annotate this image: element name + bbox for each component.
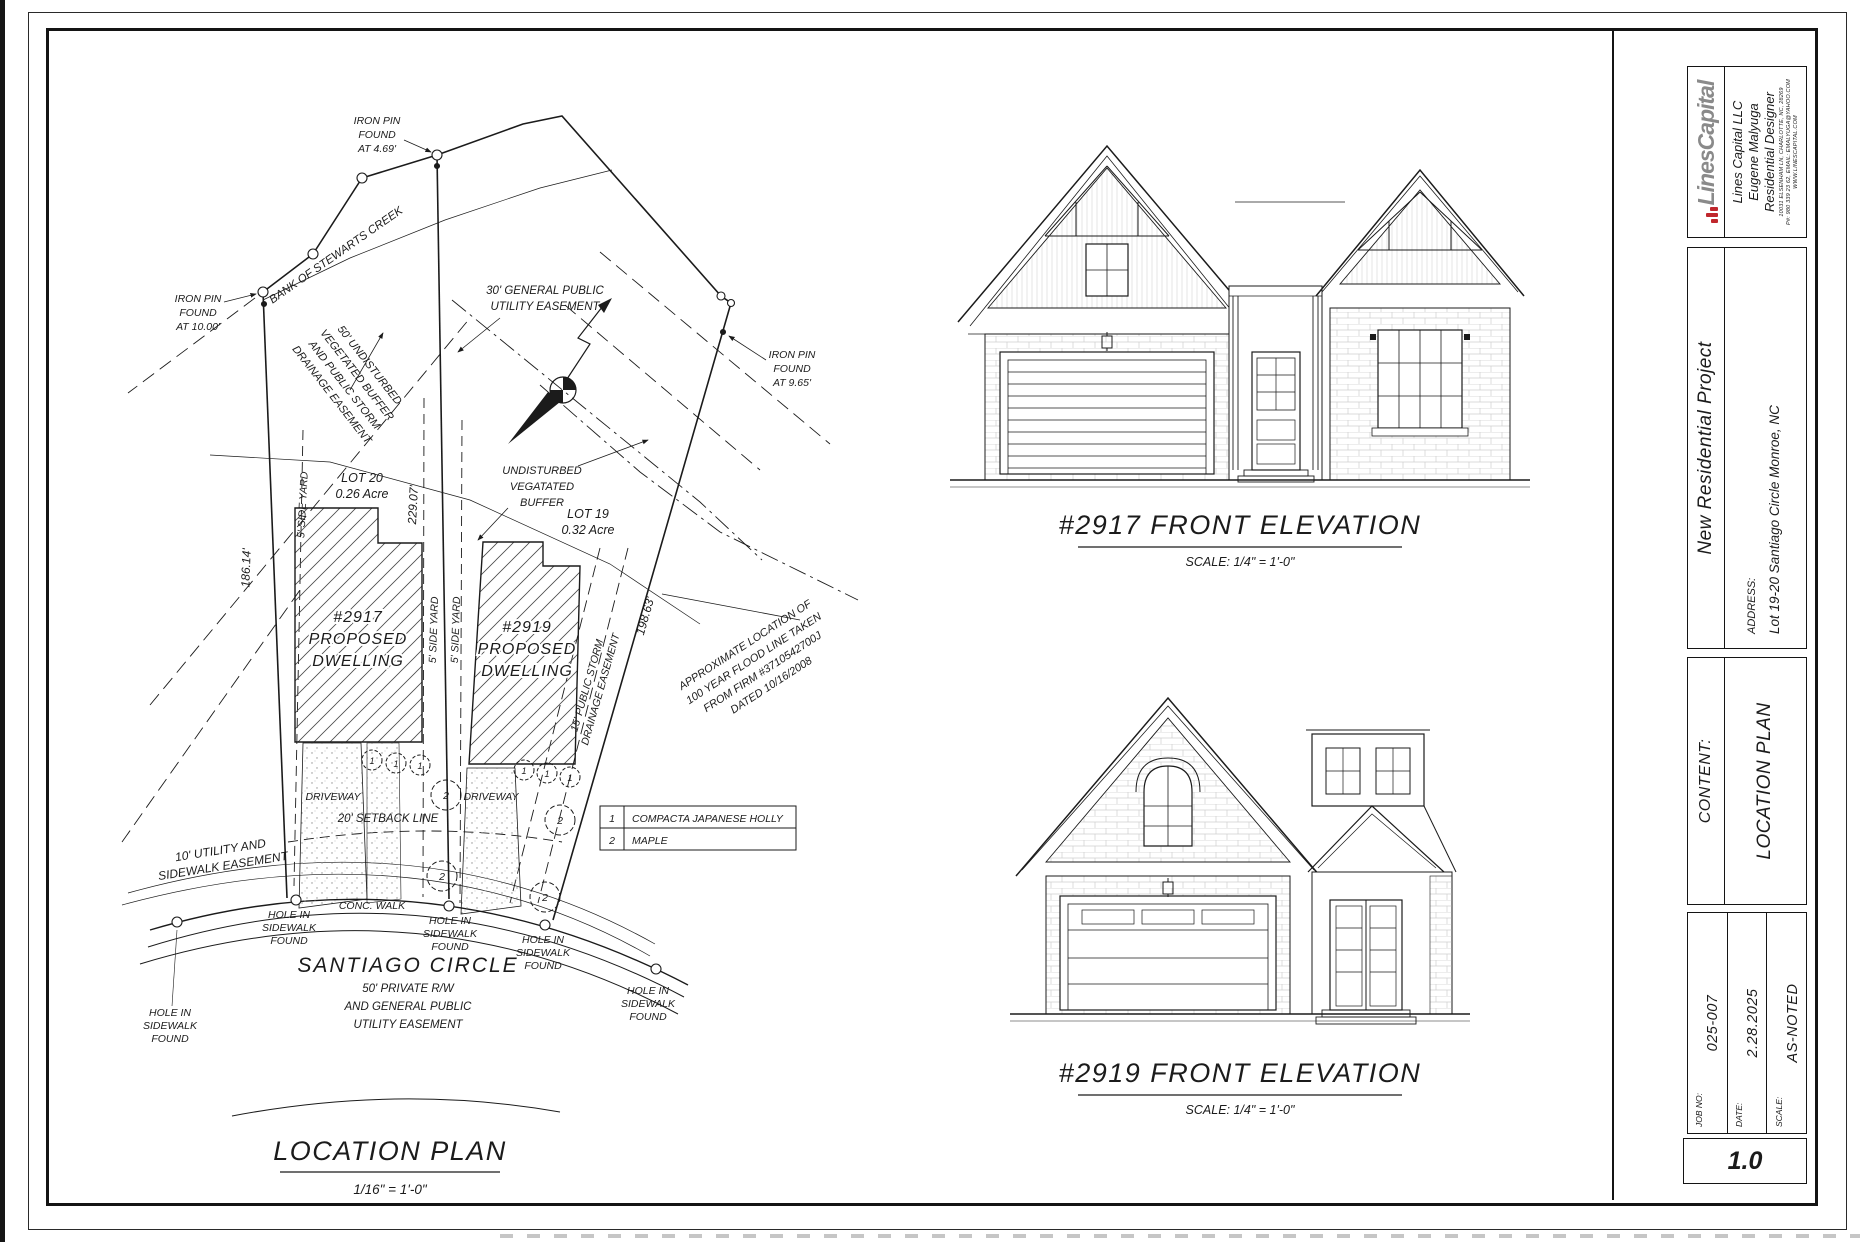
- clerestory-box: [1306, 730, 1430, 806]
- main-window: [1370, 330, 1470, 436]
- gable-window: [1086, 244, 1128, 296]
- content-label: CONTENT:: [1697, 739, 1715, 824]
- svg-text:AND GENERAL PUBLIC: AND GENERAL PUBLIC: [344, 1001, 473, 1013]
- job-no-label: JOB NO:: [1694, 1093, 1704, 1133]
- elevation-2917: #2917 FRONT ELEVATION SCALE: 1/4" = 1'-0…: [950, 146, 1530, 569]
- project-name-cell: New Residential Project: [1688, 248, 1725, 648]
- svg-text:FOUND: FOUND: [524, 960, 562, 972]
- svg-text:IRON PIN: IRON PIN: [175, 293, 222, 305]
- shrub-num: 1: [544, 769, 549, 779]
- lot20-area: 0.26 Acre: [335, 487, 388, 501]
- svg-text:PROPOSED: PROPOSED: [309, 631, 408, 648]
- svg-text:SIDEWALK: SIDEWALK: [262, 922, 317, 934]
- sheet-number-box: 1.0: [1683, 1138, 1807, 1184]
- svg-text:HOLE IN: HOLE IN: [268, 909, 310, 921]
- company-name: Lines Capital LLC: [1730, 101, 1746, 204]
- titleblock-job-box: JOB NO: 025-007 DATE: 2.28.2025 SCALE: A…: [1687, 912, 1807, 1134]
- designer-role: Residential Designer: [1762, 92, 1778, 212]
- logo-bar-icon: [1706, 213, 1718, 217]
- svg-text:HOLE IN: HOLE IN: [522, 934, 564, 946]
- dim-middle: 229.07': [405, 484, 421, 525]
- svg-text:PROPOSED: PROPOSED: [478, 641, 577, 658]
- shrub-num: 1: [417, 761, 422, 771]
- elevation-2917-title: #2917 FRONT ELEVATION: [1059, 510, 1422, 540]
- date-value: 2.28.2025: [1745, 989, 1761, 1058]
- svg-text:DWELLING: DWELLING: [312, 653, 404, 670]
- elevation-2919-title: #2919 FRONT ELEVATION: [1059, 1058, 1422, 1088]
- creek-label: BANK OF STEWARTS CREEK: [267, 204, 406, 306]
- drawing-sheet: 1 1 1 1 1 1 2 2 2 2 1 COMPACTA JAPANESE …: [0, 0, 1870, 1242]
- setback-label: 20' SETBACK LINE: [337, 813, 439, 825]
- tree-num: 2: [438, 871, 445, 883]
- svg-text:AT 9.65': AT 9.65': [772, 377, 812, 389]
- drawing-canvas: 1 1 1 1 1 1 2 2 2 2 1 COMPACTA JAPANESE …: [46, 28, 1612, 1200]
- brand-info-cell: Lines Capital LLC Eugene Malyuga Residen…: [1724, 67, 1806, 237]
- buffer-centerline: [452, 300, 762, 560]
- dim-right: 198.63': [633, 595, 657, 637]
- svg-text:SIDEWALK: SIDEWALK: [516, 947, 571, 959]
- side-yard-mid1: 5' SIDE YARD: [427, 596, 441, 663]
- lot19-area: 0.32 Acre: [561, 523, 614, 537]
- scale-cell: SCALE: AS-NOTED: [1766, 913, 1807, 1133]
- content-label-cell: CONTENT:: [1688, 658, 1725, 904]
- plan-scale: 1/16" = 1'-0": [353, 1182, 428, 1197]
- svg-text:FOUND: FOUND: [431, 941, 469, 953]
- hole-label-2: HOLE IN SIDEWALK FOUND: [262, 909, 317, 947]
- garage-door: [1000, 352, 1214, 474]
- svg-text:50' PRIVATE R/W: 50' PRIVATE R/W: [362, 983, 455, 995]
- plan-labels: BANK OF STEWARTS CREEK IRON PIN FOUND AT…: [143, 115, 841, 1197]
- svg-text:30' GENERAL PUBLIC: 30' GENERAL PUBLIC: [486, 285, 604, 297]
- plant-row-num: 2: [608, 835, 615, 847]
- driveway-label: DRIVEWAY: [305, 791, 361, 803]
- content-value: LOCATION PLAN: [1754, 702, 1776, 859]
- svg-text:HOLE IN: HOLE IN: [627, 985, 669, 997]
- svg-text:IRON PIN: IRON PIN: [354, 115, 401, 127]
- utility-30-label: 30' GENERAL PUBLIC UTILITY EASEMENT: [486, 285, 604, 313]
- sheet-number: 1.0: [1728, 1147, 1763, 1176]
- scale-value: AS-NOTED: [1785, 984, 1801, 1063]
- shrub-num: 1: [521, 766, 526, 776]
- svg-text:DWELLING: DWELLING: [481, 663, 573, 680]
- scale-label: SCALE:: [1774, 1097, 1784, 1133]
- elevation-2919-scale: SCALE: 1/4" = 1'-0": [1186, 1103, 1295, 1117]
- entry-section: [1229, 286, 1322, 482]
- plan-title: LOCATION PLAN: [273, 1136, 507, 1166]
- plant-row-num: 1: [609, 813, 615, 825]
- tree-num: 2: [556, 815, 563, 827]
- driveway-2919: [461, 768, 521, 914]
- address-value: Lot 19-20 Santiago Circle Monroe, NC: [1767, 405, 1784, 634]
- company-address: 10031 ELSENHAM LN, CHARLOTTE, NC, 28269: [1779, 87, 1786, 216]
- tree-num: 2: [442, 790, 449, 802]
- lot19-name: LOT 19: [567, 507, 609, 521]
- titleblock-project-box: New Residential Project ADDRESS: Lot 19-…: [1687, 247, 1807, 649]
- titleblock-brand-box: LinesCapital Lines Capital LLC Eugene Ma…: [1687, 66, 1807, 238]
- project-address-cell: ADDRESS: Lot 19-20 Santiago Circle Monro…: [1724, 248, 1806, 648]
- driveway-label: DRIVEWAY: [463, 791, 519, 803]
- utility-10-label: 10' UTILITY AND SIDEWALK EASEMENT: [155, 833, 291, 883]
- tree-num: 2: [541, 892, 548, 904]
- conc-walk-label: CONC. WALK: [339, 900, 406, 912]
- iron-pin-965-label: IRON PIN FOUND AT 9.65': [769, 349, 816, 389]
- titleblock-divider-line: [1612, 28, 1614, 1200]
- svg-text:#2917: #2917: [333, 609, 383, 626]
- logo-bar-icon: [1710, 207, 1718, 211]
- svg-text:SIDEWALK: SIDEWALK: [143, 1020, 198, 1032]
- porch-gable-roof: [1308, 806, 1444, 872]
- iron-pin-10-label: IRON PIN FOUND AT 10.00': [175, 293, 222, 333]
- road-label: SANTIAGO CIRCLE 50' PRIVATE R/W AND GENE…: [297, 954, 518, 1031]
- side-yard-mid2: 5' SIDE YARD: [449, 596, 463, 663]
- shrub-num: 1: [567, 773, 572, 783]
- plant-row-name: MAPLE: [632, 835, 669, 847]
- job-no-value: 025-007: [1705, 995, 1721, 1052]
- hole-label-1: HOLE IN SIDEWALK FOUND: [143, 1007, 198, 1045]
- plant-row-name: COMPACTA JAPANESE HOLLY: [632, 813, 784, 825]
- flood-label: APPROXIMATE LOCATION OF 100 YEAR FLOOD L…: [676, 597, 842, 734]
- svg-text:#2919: #2919: [502, 619, 552, 636]
- svg-text:BUFFER: BUFFER: [520, 497, 564, 509]
- svg-text:IRON PIN: IRON PIN: [769, 349, 816, 361]
- svg-text:UNDISTURBED: UNDISTURBED: [502, 465, 582, 477]
- svg-text:FOUND: FOUND: [270, 935, 308, 947]
- svg-text:FOUND: FOUND: [358, 129, 396, 141]
- driveway-2917: [299, 743, 367, 908]
- brand-logo-cell: LinesCapital: [1688, 67, 1725, 237]
- job-no-cell: JOB NO: 025-007: [1688, 913, 1727, 1133]
- svg-text:AT 4.69': AT 4.69': [357, 143, 397, 155]
- shrub-num: 1: [393, 759, 398, 769]
- shrub-num: 1: [369, 756, 374, 766]
- date-cell: DATE: 2.28.2025: [1727, 913, 1767, 1133]
- buffer-diagonal-label: 50' UNDISTURBED VEGETATED BUFFER AND PUB…: [289, 314, 412, 447]
- location-plan: 1 1 1 1 1 1 2 2 2 2 1 COMPACTA JAPANESE …: [122, 115, 858, 1197]
- svg-text:FOUND: FOUND: [151, 1033, 189, 1045]
- svg-text:AT 10.00': AT 10.00': [175, 321, 221, 333]
- content-value-cell: LOCATION PLAN: [1724, 658, 1806, 904]
- flood-line: [540, 385, 858, 600]
- logo-bar-icon: [1711, 219, 1718, 223]
- logo-text: LinesCapital: [1695, 81, 1718, 206]
- date-label: DATE:: [1734, 1103, 1744, 1133]
- iron-pin-469-label: IRON PIN FOUND AT 4.69': [354, 115, 401, 155]
- scan-edge-artifact: [0, 0, 5, 1242]
- svg-text:VEGATATED: VEGATATED: [510, 481, 574, 493]
- company-website: WWW.LINESCAPITAL.COM: [1793, 115, 1800, 189]
- scan-dots-artifact: [500, 1234, 1860, 1238]
- driveways: [299, 743, 521, 914]
- lines-capital-logo: LinesCapital: [1695, 81, 1718, 224]
- elevation-2919: #2919 FRONT ELEVATION SCALE: 1/4" = 1'-0…: [1010, 698, 1470, 1117]
- svg-text:HOLE IN: HOLE IN: [149, 1007, 191, 1019]
- svg-text:FOUND: FOUND: [773, 363, 811, 375]
- svg-text:SIDEWALK: SIDEWALK: [423, 928, 478, 940]
- garage-door: [1060, 896, 1276, 1010]
- address-label: ADDRESS:: [1746, 578, 1758, 634]
- designer-name: Eugene Malyuga: [1746, 103, 1762, 201]
- svg-text:SIDEWALK: SIDEWALK: [621, 998, 676, 1010]
- titleblock-content-box: CONTENT: LOCATION PLAN: [1687, 657, 1807, 905]
- svg-text:FROM FIRM #3710542700J: FROM FIRM #3710542700J: [702, 629, 825, 715]
- elevation-2917-scale: SCALE: 1/4" = 1'-0": [1186, 555, 1295, 569]
- svg-text:FOUND: FOUND: [629, 1011, 667, 1023]
- svg-text:UTILITY EASEMENT: UTILITY EASEMENT: [490, 301, 600, 313]
- svg-text:SANTIAGO CIRCLE: SANTIAGO CIRCLE: [297, 954, 518, 977]
- project-name: New Residential Project: [1695, 341, 1717, 554]
- north-arrow: [508, 298, 612, 444]
- hole-label-5: HOLE IN SIDEWALK FOUND: [621, 985, 676, 1023]
- dim-left: 186.14': [238, 547, 253, 587]
- hole-label-4: HOLE IN SIDEWALK FOUND: [516, 934, 571, 972]
- hole-label-3: HOLE IN SIDEWALK FOUND: [423, 915, 478, 953]
- company-contact: P#: 980 339 23 62, EMAIL: EMALYUGA@YAHOO…: [1786, 79, 1793, 225]
- lot20-name: LOT 20: [341, 471, 383, 485]
- buffer-label: UNDISTURBED VEGATATED BUFFER: [502, 465, 582, 509]
- svg-text:HOLE IN: HOLE IN: [429, 915, 471, 927]
- svg-text:UTILITY EASEMENT: UTILITY EASEMENT: [353, 1019, 463, 1031]
- svg-text:FOUND: FOUND: [179, 307, 217, 319]
